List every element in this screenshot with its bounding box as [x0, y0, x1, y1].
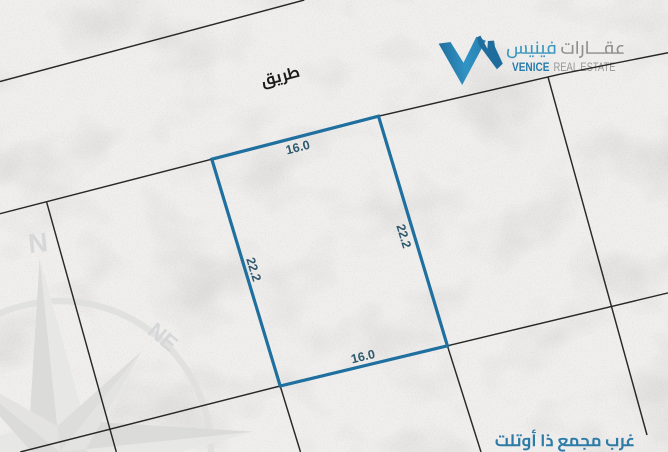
svg-text:VENICE: VENICE	[512, 60, 550, 74]
svg-text:N: N	[27, 227, 50, 259]
svg-text:REAL ESTATE: REAL ESTATE	[554, 60, 616, 74]
